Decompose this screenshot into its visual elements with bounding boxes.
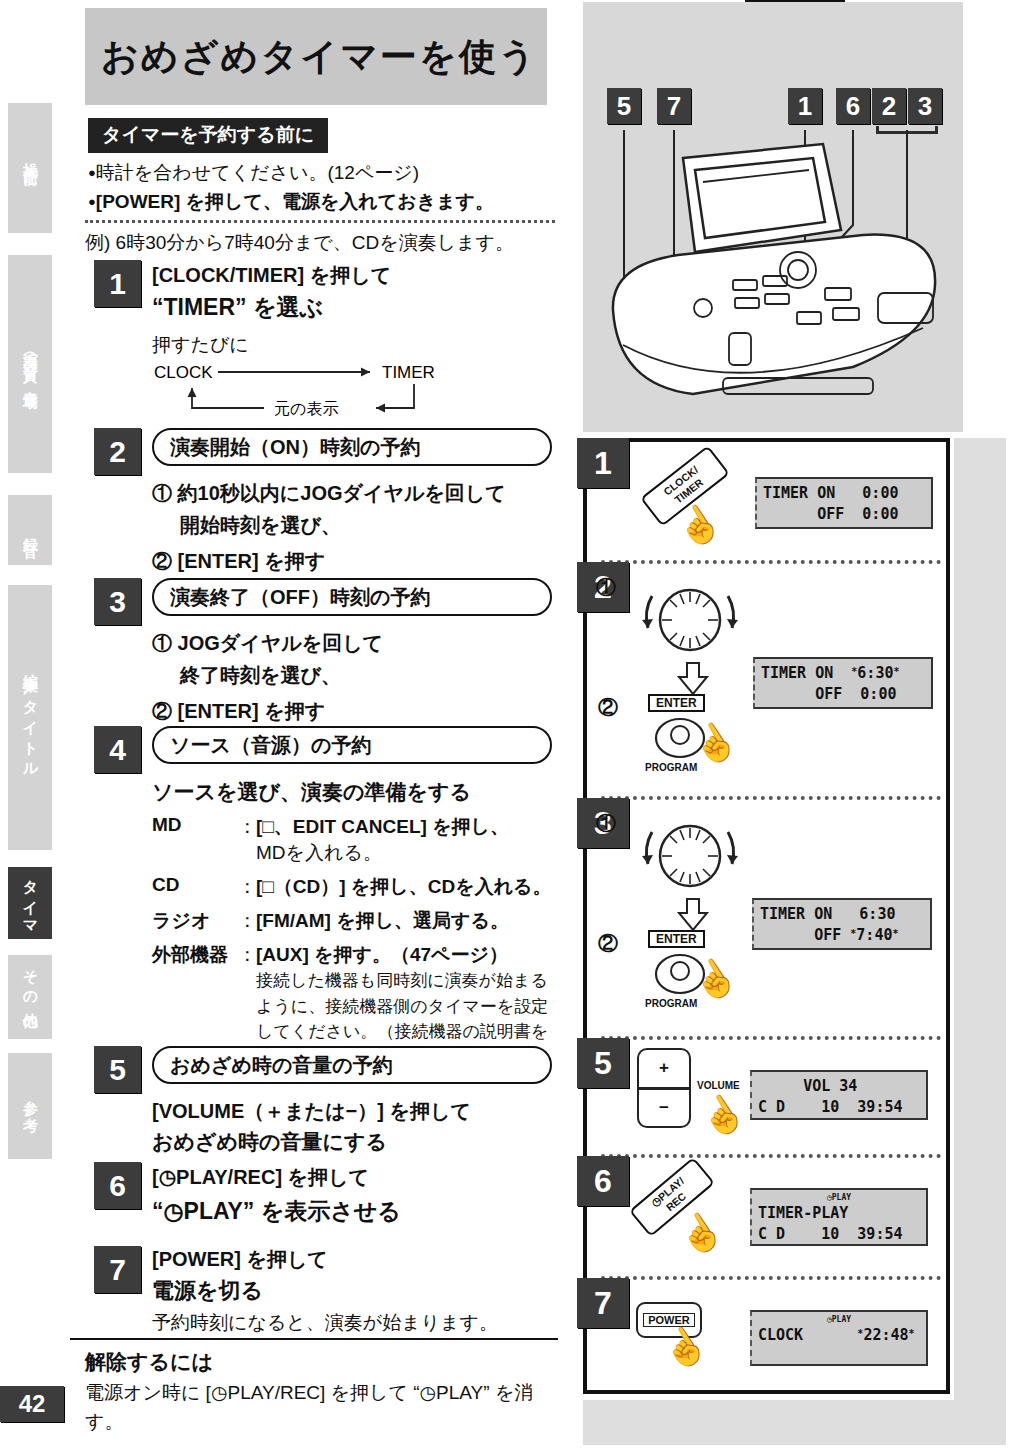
enter-button: ENTER xyxy=(648,694,705,712)
callout-5: 5 xyxy=(607,88,641,124)
manual-page: { "page": {"number": "42"}, "icons": {"h… xyxy=(0,0,1036,1456)
source-colon: ： xyxy=(238,814,256,866)
callout-7: 7 xyxy=(657,88,691,124)
diagram-timer-label: TIMER xyxy=(382,363,435,382)
step7-badge: 7 xyxy=(94,1246,141,1293)
source-colon: ： xyxy=(238,874,256,900)
lcd-timer-play-indicator: ◷PLAY xyxy=(758,1316,920,1325)
step6-badge: 6 xyxy=(94,1162,141,1209)
step2-badge: 2 xyxy=(94,428,141,475)
intro-bullets: ●時計を合わせてください。(12ページ) ●[POWER] を押して、電源を入れ… xyxy=(88,158,494,217)
callout-1: 1 xyxy=(788,88,822,124)
diagram-clock-label: CLOCK xyxy=(154,363,213,382)
substep-1-mark: ① xyxy=(596,810,616,837)
lcd-line2: C D 10 39:54 xyxy=(758,1098,903,1116)
callout-3: 3 xyxy=(908,88,942,124)
step7-line2: 電源を切る xyxy=(152,1276,263,1306)
source-label: CD xyxy=(152,874,238,900)
panel-separator xyxy=(601,1276,941,1280)
tab-label: 操作前に xyxy=(21,151,40,184)
sidebar-tab-play: 演奏（音質／音場） xyxy=(8,255,52,473)
panel7-badge: 7 xyxy=(577,1278,629,1328)
source-desc-line1: [□（CD）] を押し、CDを入れる。 xyxy=(256,874,552,900)
step1-line1: [CLOCK/TIMER] を押して xyxy=(152,262,391,289)
tab-label: 録音 xyxy=(21,526,40,534)
volume-label: VOLUME xyxy=(697,1080,740,1091)
source-label: ラジオ xyxy=(152,908,238,934)
step2-item1a: ① 約10秒以内にJOGダイヤルを回して xyxy=(152,480,506,507)
step1-badge: 1 xyxy=(94,260,141,307)
tab-label: タイマー xyxy=(21,869,40,936)
source-desc-line1: [AUX] を押す。（47ページ） xyxy=(256,944,508,965)
source-desc-line1: [□、EDIT CANCEL] を押し、 xyxy=(256,816,509,837)
jog-dial-icon xyxy=(638,816,742,898)
step5-pill-header: おめざめ時の音量の予約 xyxy=(152,1046,552,1084)
step-number: 6 xyxy=(109,1169,126,1203)
page-edge-shading-right xyxy=(954,438,1006,1444)
step-number: 1 xyxy=(109,267,126,301)
step3-item2: ② [ENTER] を押す xyxy=(152,698,325,725)
tab-label: 編集／タイトル xyxy=(21,662,40,773)
step5-line2: おめざめ時の音量にする xyxy=(152,1128,387,1156)
source-label: MD xyxy=(152,814,238,866)
callout-number: 2 xyxy=(882,91,896,122)
step1-line2: “TIMER” を選ぶ xyxy=(152,292,323,323)
step2-item1b: 開始時刻を選び、 xyxy=(180,512,341,539)
step6-line2: “◷PLAY” を表示させる xyxy=(152,1196,401,1227)
sidebar-tab-edit-title: 編集／タイトル xyxy=(8,585,52,850)
cancel-body: 電源オン時に [◷PLAY/REC] を押して “◷PLAY” を消す。 xyxy=(85,1378,557,1437)
sidebar-tab-before-operation: 操作前に xyxy=(8,103,52,233)
step3-item1b: 終了時刻を選び、 xyxy=(180,662,341,689)
cancel-title: 解除するには xyxy=(85,1348,213,1376)
substep-1-mark: ① xyxy=(596,574,616,601)
panel-number: 1 xyxy=(594,445,612,482)
bullet-line: ●時計を合わせてください。(12ページ) xyxy=(88,158,494,187)
lcd-line1: TIMER-PLAY xyxy=(758,1204,848,1222)
source-colon: ： xyxy=(238,908,256,934)
callout-number: 3 xyxy=(918,91,932,122)
step4-source-list: MD ： [□、EDIT CANCEL] を押し、MDを入れる。 CD ： [□… xyxy=(152,814,557,1070)
tab-label: 演奏（音質／音場） xyxy=(21,339,40,390)
volume-rocker-button: + − xyxy=(637,1048,691,1128)
step3-item1a: ① JOGダイヤルを回して xyxy=(152,630,383,657)
lcd-blinking-value: 6:30 xyxy=(851,664,899,682)
step4-lead: ソースを選び、演奏の準備をする xyxy=(152,778,471,806)
example-line: 例) 6時30分から7時40分まで、CDを演奏します。 xyxy=(85,230,514,256)
bullet-line: ●[POWER] を押して、電源を入れておきます。 xyxy=(88,187,494,216)
lcd-line1: CLOCK xyxy=(758,1326,857,1344)
source-row-radio: ラジオ ： [FM/AM] を押し、選局する。 xyxy=(152,908,557,934)
sidebar-tab-reference: 参考 xyxy=(8,1053,52,1159)
callout-number: 7 xyxy=(667,91,681,122)
lcd-display-step6: ◷PLAYTIMER-PLAYC D 10 39:54 xyxy=(750,1188,928,1246)
diagram-return-label: 元の表示 xyxy=(274,400,338,417)
lcd-line1: TIMER ON 0:00 xyxy=(763,484,898,502)
step4-badge: 4 xyxy=(94,726,141,773)
step-number: 5 xyxy=(109,1053,126,1087)
source-row-md: MD ： [□、EDIT CANCEL] を押し、MDを入れる。 xyxy=(152,814,557,866)
page-number-badge: 42 xyxy=(0,1386,64,1422)
intro-heading: タイマーを予約する前に xyxy=(88,118,328,153)
step2-item2: ② [ENTER] を押す xyxy=(152,548,325,575)
panel5-badge: 5 xyxy=(577,1038,629,1088)
bullet-icon: ● xyxy=(88,165,96,180)
step2-pill-header: 演奏開始（ON）時刻の予約 xyxy=(152,428,552,466)
lcd-display-step3: TIMER ON 6:30 OFF 7:40 xyxy=(752,898,932,950)
lcd-line2: OFF 0:00 xyxy=(761,685,896,703)
source-desc-line1: [FM/AM] を押し、選局する。 xyxy=(256,908,509,934)
lcd-line1: TIMER ON xyxy=(761,664,851,682)
device-illustration xyxy=(583,130,963,430)
down-arrow-icon xyxy=(676,662,710,696)
lcd-display-step5: VOL 34C D 10 39:54 xyxy=(750,1070,928,1120)
lcd-display-step1: TIMER ON 0:00 OFF 0:00 xyxy=(755,477,933,529)
lcd-line2: C D 10 39:54 xyxy=(758,1225,903,1243)
step7-line1: [POWER] を押して xyxy=(152,1246,328,1273)
lcd-display-step2: TIMER ON 6:30 OFF 0:00 xyxy=(753,657,933,709)
intro-heading-box: タイマーを予約する前に xyxy=(88,118,328,153)
tab-label: 参考 xyxy=(21,1088,40,1124)
panel6-badge: 6 xyxy=(577,1156,629,1206)
step6-line1: [◷PLAY/REC] を押して xyxy=(152,1164,369,1191)
step-number: 2 xyxy=(109,435,126,469)
step5-line1: [VOLUME（＋または−）] を押して xyxy=(152,1098,471,1125)
lcd-timer-play-indicator: ◷PLAY xyxy=(758,1194,920,1203)
panel-separator xyxy=(601,1154,941,1158)
title-banner: おめざめタイマーを使う xyxy=(85,8,547,105)
page-edge-shading-bottom xyxy=(583,1400,1006,1445)
step1-sub: 押すたびに xyxy=(152,332,249,358)
callout-number: 5 xyxy=(617,91,631,122)
substep-2-mark: ② xyxy=(598,930,618,957)
callout-number: 6 xyxy=(846,91,860,122)
dotted-divider xyxy=(85,220,555,223)
program-label: PROGRAM xyxy=(645,998,697,1009)
panel1-badge: 1 xyxy=(577,438,629,488)
step7-note: 予約時刻になると、演奏が始まります。 xyxy=(152,1310,498,1336)
page-title: おめざめタイマーを使う xyxy=(101,32,538,82)
lcd-line1: VOL 34 xyxy=(758,1077,857,1095)
step-number: 4 xyxy=(109,733,126,767)
bullet-text: [POWER] を押して、電源を入れておきます。 xyxy=(96,191,494,212)
step3-badge: 3 xyxy=(94,578,141,625)
page-number: 42 xyxy=(19,1390,46,1418)
bullet-text: 時計を合わせてください。(12ページ) xyxy=(96,162,419,183)
step-number: 3 xyxy=(109,585,126,619)
program-label: PROGRAM xyxy=(645,762,697,773)
source-desc: [□、EDIT CANCEL] を押し、MDを入れる。 xyxy=(256,814,509,866)
sidebar-tab-recording: 録音 xyxy=(8,495,52,565)
callout-2: 2 xyxy=(872,88,906,124)
sidebar-tab-timer-active: タイマー xyxy=(8,867,52,939)
bullet-icon: ● xyxy=(88,194,96,209)
lcd-blinking-value: 22:48 xyxy=(857,1326,914,1344)
panel-number: 6 xyxy=(594,1163,612,1200)
clock-timer-cycle-diagram: CLOCK TIMER 元の表示 xyxy=(152,356,492,428)
callout-6: 6 xyxy=(836,88,870,124)
divider-rule xyxy=(70,1338,558,1340)
lcd-line1: TIMER ON 6:30 xyxy=(760,905,895,923)
source-desc-line2: MDを入れる。 xyxy=(256,842,382,863)
step5-badge: 5 xyxy=(94,1046,141,1093)
panel-separator xyxy=(601,560,941,564)
panel-separator xyxy=(601,1036,941,1040)
enter-button: ENTER xyxy=(648,930,705,948)
substep-2-mark: ② xyxy=(598,694,618,721)
step4-pill-header: ソース（音源）の予約 xyxy=(152,726,552,764)
source-row-cd: CD ： [□（CD）] を押し、CDを入れる。 xyxy=(152,874,557,900)
lcd-blinking-value: 7:40 xyxy=(850,926,898,944)
lcd-display-step7: ◷PLAYCLOCK 22:48 xyxy=(750,1310,928,1366)
panel-separator xyxy=(601,796,941,800)
down-arrow-icon xyxy=(676,898,710,932)
lcd-line2: OFF 0:00 xyxy=(763,505,898,523)
step3-pill-header: 演奏終了（OFF）時刻の予約 xyxy=(152,578,552,616)
sidebar-tab-other-functions: その他の機能 xyxy=(8,955,52,1039)
tab-label: その他の機能 xyxy=(21,959,40,1034)
panel-number: 7 xyxy=(594,1285,612,1322)
callout-number: 1 xyxy=(798,91,812,122)
panel-number: 5 xyxy=(594,1045,612,1082)
volume-minus: − xyxy=(659,1090,669,1127)
step-number: 7 xyxy=(109,1253,126,1287)
lcd-line2: OFF xyxy=(760,926,850,944)
volume-plus: + xyxy=(659,1050,669,1087)
jog-dial-icon xyxy=(638,580,742,662)
